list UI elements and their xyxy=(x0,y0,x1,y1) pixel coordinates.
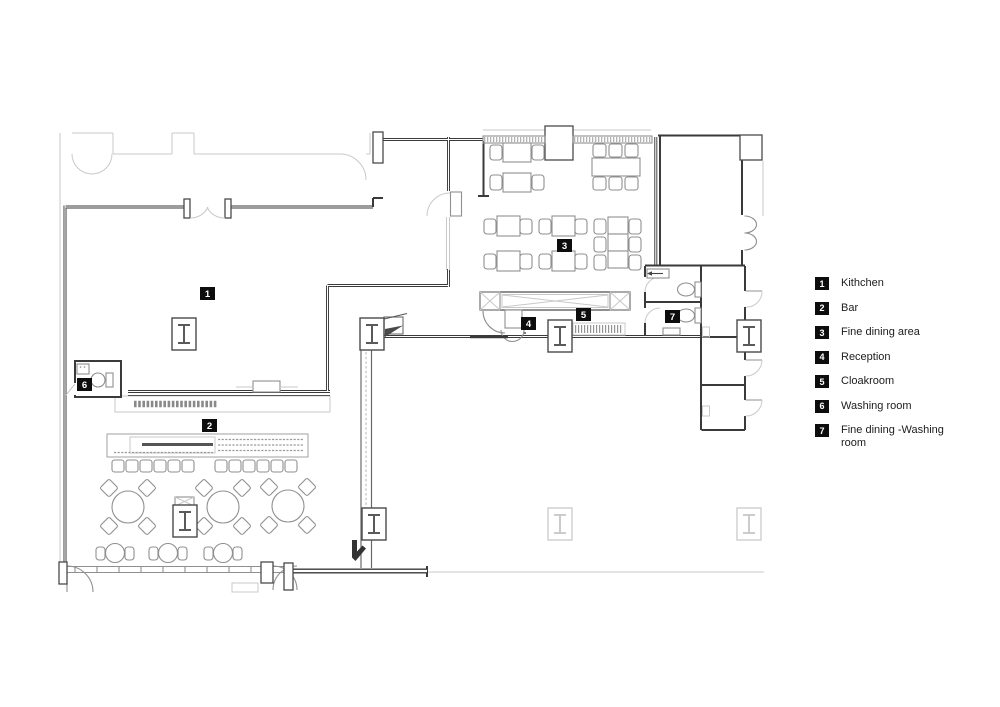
legend-label-cloakroom: Cloakroom xyxy=(841,375,949,388)
adjacent-structure-outline xyxy=(60,130,764,572)
chair-icon xyxy=(575,254,587,269)
legend-label-bar: Bar xyxy=(841,302,949,315)
legend: 1 Kithchen 2 Bar 3 Fine dining area 4 Re… xyxy=(815,277,953,462)
toilet-icon xyxy=(695,308,701,323)
chair-icon xyxy=(484,254,496,269)
small-table-icon xyxy=(149,544,187,563)
legend-label-washing-room: Washing room xyxy=(841,400,949,413)
dining-table-icon xyxy=(539,216,587,236)
legend-key-6: 6 xyxy=(815,400,829,413)
door-arc xyxy=(67,566,93,592)
sink-icon xyxy=(77,364,89,374)
double-door-arc xyxy=(745,216,757,250)
shelf xyxy=(663,328,680,335)
room-marker-4: 4 xyxy=(521,317,536,330)
alcove-pier xyxy=(545,126,573,160)
legend-item-fine-dining: 3 Fine dining area xyxy=(815,326,953,339)
bar-counter xyxy=(107,434,308,457)
legend-label-fine-dining: Fine dining area xyxy=(841,326,949,339)
toilet-icon xyxy=(695,282,701,297)
round-table-icon xyxy=(260,478,316,534)
chair-icon xyxy=(520,254,532,269)
legend-item-kitchen: 1 Kithchen xyxy=(815,277,953,290)
legend-item-fine-dining-washing-room: 7 Fine dining -Washing room xyxy=(815,424,953,450)
room-marker-7: 7 xyxy=(665,310,680,323)
chair-icon xyxy=(490,145,502,160)
chair-icon xyxy=(532,145,544,160)
svg-text:5: 5 xyxy=(581,310,587,321)
dining-table-6-icon xyxy=(592,144,640,190)
legend-item-washing-room: 6 Washing room xyxy=(815,400,953,413)
bar-area-tables xyxy=(96,478,316,563)
column-icon xyxy=(548,320,572,352)
column-icon xyxy=(173,505,197,537)
pillar xyxy=(284,563,293,590)
svg-text:3: 3 xyxy=(562,241,567,252)
adjacent-door-arc xyxy=(72,154,366,180)
chair-icon xyxy=(96,547,105,560)
column-icon xyxy=(737,508,761,540)
chair-icon xyxy=(298,478,316,496)
round-table-icon xyxy=(195,479,251,535)
dining-table-icon xyxy=(539,251,587,271)
chair-icon xyxy=(539,254,551,269)
toilet-icon xyxy=(678,283,695,296)
floor-plan-page: { "colors": { "background": "#ffffff", "… xyxy=(0,0,1000,707)
chair-icon xyxy=(593,177,606,190)
chair-icon xyxy=(298,516,316,534)
chair-icon xyxy=(195,479,213,497)
legend-key-3: 3 xyxy=(815,326,829,339)
chair-icon xyxy=(260,516,278,534)
room-marker-3: 3 xyxy=(557,239,572,252)
dining-table-icon xyxy=(484,216,532,236)
chair-icon xyxy=(629,255,641,270)
svg-text:2: 2 xyxy=(207,421,212,432)
column-icon xyxy=(360,318,384,350)
chair-icon xyxy=(178,547,187,560)
svg-text:4: 4 xyxy=(526,319,532,330)
direction-arrow-icon xyxy=(352,540,366,561)
kitchen-counter xyxy=(115,381,330,412)
chair-icon xyxy=(125,547,134,560)
legend-label-reception: Reception xyxy=(841,351,949,364)
chair-icon xyxy=(575,219,587,234)
chair-icon xyxy=(233,517,251,535)
window-wall xyxy=(65,567,287,573)
dining-table-icon xyxy=(490,143,544,162)
chair-icon xyxy=(594,219,606,234)
bar-stool-icon xyxy=(140,460,152,472)
chair-icon xyxy=(149,547,158,560)
door-jamb xyxy=(184,199,190,218)
legend-label-fine-dining-washing-room: Fine dining -Washing room xyxy=(841,424,949,450)
bar-stool-icon xyxy=(182,460,194,472)
shaft-notch xyxy=(740,135,762,160)
chair-icon xyxy=(609,144,622,157)
chair-icon xyxy=(629,237,641,252)
door-arc xyxy=(746,291,763,416)
small-table-icon xyxy=(204,544,242,563)
dining-table-icon xyxy=(484,251,532,271)
column-icon xyxy=(362,508,386,540)
bar-stool-icon xyxy=(243,460,255,472)
legend-item-bar: 2 Bar xyxy=(815,302,953,315)
chair-icon xyxy=(233,479,251,497)
small-table-icon xyxy=(96,544,134,563)
toilet-icon xyxy=(678,309,695,322)
dining-table-6-icon xyxy=(594,217,641,270)
double-door-arc xyxy=(190,207,225,218)
bar-stools xyxy=(112,460,297,472)
wall-pier xyxy=(373,132,383,163)
room-marker-6: 6 xyxy=(77,378,92,391)
room-marker-5: 5 xyxy=(576,308,591,321)
columns xyxy=(172,318,761,540)
door-jamb xyxy=(225,199,231,218)
chair-icon xyxy=(484,219,496,234)
chair-icon xyxy=(594,255,606,270)
chair-icon xyxy=(520,219,532,234)
chair-icon xyxy=(625,177,638,190)
chair-icon xyxy=(260,478,278,496)
door-leaf xyxy=(451,192,462,216)
legend-label-kitchen: Kithchen xyxy=(841,277,949,290)
chair-icon xyxy=(138,517,156,535)
legend-item-cloakroom: 5 Cloakroom xyxy=(815,375,953,388)
chair-icon xyxy=(609,177,622,190)
chair-icon xyxy=(629,219,641,234)
chair-icon xyxy=(593,144,606,157)
legend-key-2: 2 xyxy=(815,302,829,315)
door-arc xyxy=(645,277,660,323)
round-table-icon xyxy=(100,479,156,535)
bar-stool-icon xyxy=(229,460,241,472)
room-marker-2: 2 xyxy=(202,419,217,432)
chair-icon xyxy=(233,547,242,560)
chair-icon xyxy=(138,479,156,497)
bar-stool-icon xyxy=(215,460,227,472)
washing-room-6 xyxy=(66,361,121,397)
column-icon xyxy=(172,318,196,350)
bar-stool-icon xyxy=(168,460,180,472)
chair-icon xyxy=(100,517,118,535)
chair-icon xyxy=(625,144,638,157)
bar-stool-icon xyxy=(257,460,269,472)
column-icon xyxy=(548,508,572,540)
bar-stool-icon xyxy=(285,460,297,472)
chair-icon xyxy=(539,219,551,234)
kitchen-pass-box xyxy=(253,381,280,392)
svg-text:6: 6 xyxy=(82,380,87,391)
legend-key-7: 7 xyxy=(815,424,829,437)
door-arc xyxy=(483,311,505,333)
svg-text:7: 7 xyxy=(670,312,675,323)
bar-stool-icon xyxy=(112,460,124,472)
legend-key-5: 5 xyxy=(815,375,829,388)
walls xyxy=(65,126,762,577)
bar-stool-icon xyxy=(126,460,138,472)
dining-table-icon xyxy=(490,173,544,192)
chair-icon xyxy=(204,547,213,560)
toilet-icon xyxy=(106,373,113,387)
door-pier xyxy=(59,562,67,584)
door-pier xyxy=(261,562,273,583)
legend-key-4: 4 xyxy=(815,351,829,364)
legend-item-reception: 4 Reception xyxy=(815,351,953,364)
toilet-icon xyxy=(91,373,105,387)
bar-stool-icon xyxy=(271,460,283,472)
room-marker-1: 1 xyxy=(200,287,215,300)
svg-text:1: 1 xyxy=(205,289,211,300)
bar-stool-icon xyxy=(154,460,166,472)
chair-icon xyxy=(594,237,606,252)
chair-icon xyxy=(532,175,544,190)
chair-icon xyxy=(490,175,502,190)
legend-key-1: 1 xyxy=(815,277,829,290)
chair-icon xyxy=(100,479,118,497)
column-icon xyxy=(737,320,761,352)
